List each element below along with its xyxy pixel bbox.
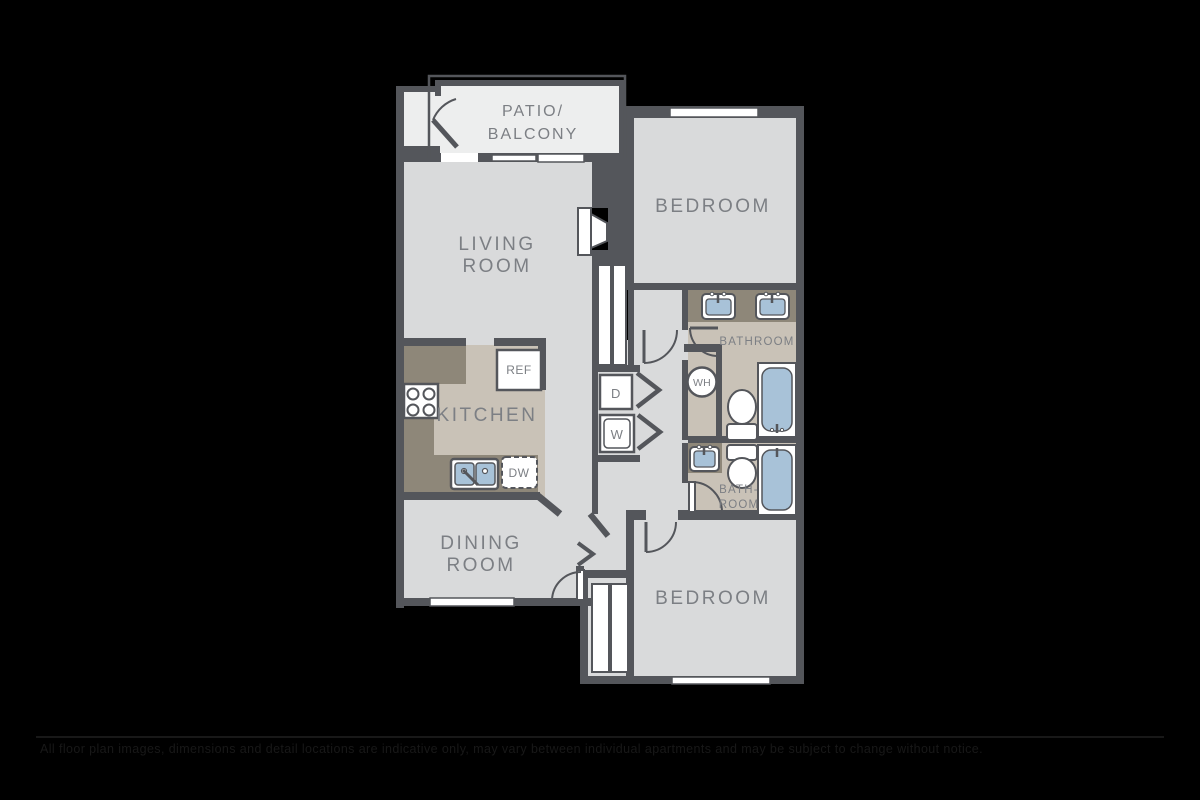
washer-icon: W <box>600 415 634 452</box>
wall-bedroom-bottom-top-a <box>626 510 646 520</box>
wall-living-right-upper <box>592 153 632 208</box>
wall-alcove-bottom <box>402 146 440 154</box>
wall-closet2-top <box>586 570 634 578</box>
kitchen-label: KITCHEN <box>437 405 538 426</box>
wall-kitchen-top-right <box>494 338 546 346</box>
sliding-door-panel <box>598 265 611 365</box>
bedroom-top-label: BEDROOM <box>655 196 771 217</box>
wall-exterior-left <box>396 86 404 608</box>
window-patio-middle <box>492 155 536 161</box>
sliding-door-panel <box>611 584 628 672</box>
toilet-icon <box>727 390 757 440</box>
disclaimer-text: All floor plan images, dimensions and de… <box>40 742 983 756</box>
window-bedroom-top <box>670 108 758 117</box>
washer-label: W <box>611 427 624 442</box>
wall-bathroom-top-left-upper <box>682 290 688 330</box>
bedroom-bottom-closet-sliding-doors <box>592 584 628 672</box>
window-bedroom-bottom <box>672 677 770 684</box>
wall-kitchen-top-left <box>396 338 466 346</box>
stove-icon <box>404 384 438 418</box>
bedroom-bottom-label: BEDROOM <box>655 588 771 609</box>
bathroom-bottom-sink-icon <box>690 445 719 471</box>
hall-closet-sliding-doors <box>598 265 626 365</box>
floorplan-canvas: REF DW D W WH <box>0 0 1200 800</box>
dishwasher-label: DW <box>509 466 530 480</box>
patio-alcove-floor <box>402 92 436 152</box>
living-room-label-line1: LIVING <box>458 234 535 255</box>
wall-wh-closet-right <box>716 352 722 440</box>
dryer-icon: D <box>600 375 632 409</box>
living-room-label-line2: ROOM <box>462 256 531 277</box>
bathroom-bottom-label-line1: BATH- <box>719 484 759 496</box>
dishwasher-icon: DW <box>502 457 537 488</box>
wall-dining-hall <box>592 462 598 514</box>
wall-exterior-right <box>796 106 804 684</box>
opening-patio-left <box>441 153 478 162</box>
refrigerator-label: REF <box>506 363 532 377</box>
window-patio-right <box>538 154 584 162</box>
kitchen-sink-icon <box>451 459 498 489</box>
wall-laundry-bottom <box>592 455 640 462</box>
bathroom-bottom-label-line2: ROOM <box>719 499 760 511</box>
wall-entry-right <box>626 520 634 578</box>
wall-laundry-left <box>592 372 598 455</box>
bathtub-icon <box>758 363 796 437</box>
wall-alcove-top <box>396 86 440 92</box>
refrigerator-icon: REF <box>497 350 541 390</box>
patio-label-line2: BALCONY <box>488 126 578 143</box>
dryer-label: D <box>611 386 621 401</box>
water-heater-label: WH <box>693 377 711 389</box>
wall-bathroom-bottom-left <box>682 443 688 483</box>
bathtub-icon <box>758 445 796 515</box>
wall-patio-top <box>435 80 625 86</box>
toilet-icon <box>727 445 757 488</box>
kitchen-counter-top <box>404 346 466 384</box>
water-heater-icon: WH <box>688 368 717 397</box>
sliding-door-panel <box>613 265 626 365</box>
wall-closet-right <box>628 258 634 372</box>
wall-exterior-entry-left <box>580 598 588 684</box>
vanity-sink-icon <box>702 292 735 319</box>
dining-room-label-line2: ROOM <box>446 555 515 576</box>
patio-label-line1: PATIO/ <box>502 103 564 120</box>
vanity-sink-icon <box>756 292 789 319</box>
hall-upper-floor <box>634 287 688 340</box>
bedroom-bottom-door-gap <box>646 510 678 520</box>
wall-kitchen-bottom <box>396 492 540 500</box>
sliding-door-panel <box>592 584 609 672</box>
bathroom-bottom-door-leaf <box>689 482 695 512</box>
wall-bedroom-top-bottom <box>626 283 798 290</box>
window-dining <box>430 598 514 606</box>
wall-bathroom-top-left-lower <box>682 360 688 440</box>
entry-door-leaf <box>577 570 584 600</box>
wall-laundry-top <box>592 365 640 372</box>
bathroom-top-label: BATHROOM <box>719 336 794 348</box>
dining-room-label-line1: DINING <box>440 533 522 554</box>
